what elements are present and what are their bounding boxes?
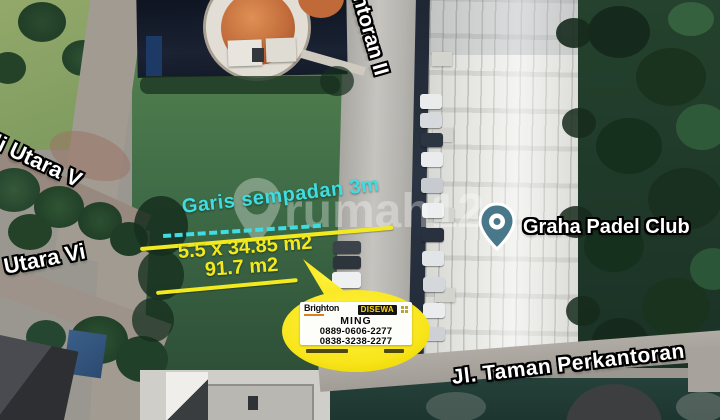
tree-blob bbox=[642, 278, 710, 336]
satellite-map-listing-image: rumah12 ntoran II li Utara V Utara Vi Jl… bbox=[0, 0, 720, 420]
parked-car bbox=[420, 113, 442, 128]
status-badge: DISEWA bbox=[358, 305, 397, 316]
agent-card: Brighton DISEWA MING 0889-0606-2277 0838… bbox=[300, 302, 412, 345]
fine-print-left bbox=[306, 349, 348, 353]
tree-blob bbox=[636, 48, 706, 106]
tree-overhang bbox=[566, 296, 600, 326]
tree-overhang bbox=[562, 108, 596, 138]
tree-blob bbox=[132, 298, 174, 342]
gray-patch bbox=[676, 392, 720, 420]
agent-card-header: Brighton DISEWA bbox=[300, 302, 412, 316]
gray-patch bbox=[426, 392, 486, 420]
warehouse-eave bbox=[432, 52, 452, 66]
fine-print-right bbox=[384, 349, 404, 353]
tree-blob bbox=[320, 66, 354, 96]
mosque-glass-panel bbox=[146, 36, 162, 76]
parked-car bbox=[421, 152, 443, 167]
place-label: Graha Padel Club bbox=[523, 216, 690, 239]
mosque-hedge bbox=[140, 76, 340, 94]
tree-blob bbox=[18, 2, 66, 42]
tree-overhang bbox=[556, 18, 592, 48]
grass-patch-light bbox=[668, 2, 714, 36]
brand-underline bbox=[304, 314, 324, 316]
roof-gable-white bbox=[166, 372, 208, 420]
tree-blob bbox=[596, 118, 662, 174]
parked-car bbox=[420, 94, 442, 109]
qr-grid-icon bbox=[400, 306, 408, 314]
tree-blob bbox=[588, 6, 650, 58]
place-pin-icon bbox=[477, 202, 517, 252]
roof-dark-mark bbox=[248, 396, 258, 410]
phone-secondary: 0838-3238-2277 bbox=[300, 337, 412, 347]
brand-logo: Brighton bbox=[304, 304, 339, 316]
grass-patch-light bbox=[676, 104, 720, 150]
mosque-annex bbox=[266, 37, 297, 62]
brand-name: Brighton bbox=[304, 304, 339, 313]
road-bottom-corner bbox=[688, 348, 720, 392]
mosque-annex-door bbox=[252, 48, 264, 62]
parked-car bbox=[421, 133, 443, 147]
